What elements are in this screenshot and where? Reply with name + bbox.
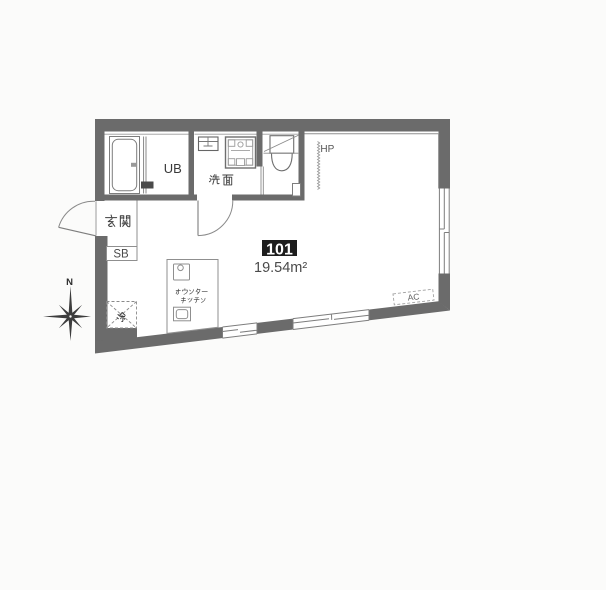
svg-text:N: N <box>66 277 73 288</box>
svg-text:19.54m²: 19.54m² <box>254 260 307 276</box>
svg-text:HP: HP <box>320 144 334 155</box>
svg-text:UB: UB <box>164 161 182 176</box>
svg-text:101: 101 <box>266 241 293 258</box>
svg-text:SB: SB <box>113 249 129 261</box>
svg-text:AC: AC <box>407 291 420 302</box>
